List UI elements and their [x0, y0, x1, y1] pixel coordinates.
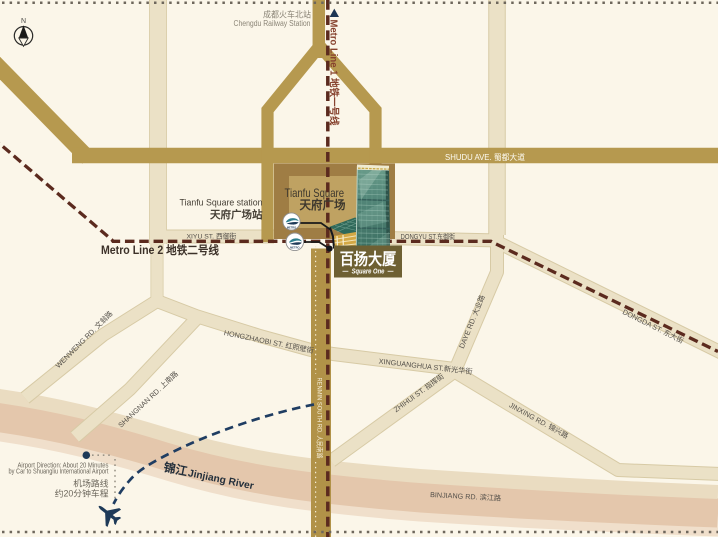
svg-text:Tianfu Square station: Tianfu Square station	[180, 198, 263, 209]
svg-text:Metro Line 1 地铁一号线: Metro Line 1 地铁一号线	[327, 20, 340, 126]
svg-text:by Car to Shuangliu Internatio: by Car to Shuangliu International Airpor…	[9, 467, 109, 476]
svg-text:成都火车北站: 成都火车北站	[263, 9, 311, 19]
svg-text:Chengdu Railway Station: Chengdu Railway Station	[234, 19, 311, 28]
svg-text:METRO: METRO	[290, 246, 299, 250]
svg-text:机场路线: 机场路线	[73, 478, 108, 489]
svg-text:天府广场站: 天府广场站	[210, 208, 263, 221]
svg-text:天府广场: 天府广场	[300, 197, 346, 212]
svg-text:SHUDU AVE. 蜀都大道: SHUDU AVE. 蜀都大道	[445, 152, 525, 162]
svg-text:DONGYU ST.东御街: DONGYU ST.东御街	[401, 232, 456, 241]
svg-text:N: N	[21, 18, 26, 25]
svg-text:RENMIN SOUTH RD. 人民南路: RENMIN SOUTH RD. 人民南路	[316, 378, 325, 459]
svg-text:— Square One —: — Square One —	[342, 267, 394, 276]
svg-text:Metro Line 2 地铁二号线: Metro Line 2 地铁二号线	[101, 243, 219, 257]
svg-text:XIYU ST. 西御街: XIYU ST. 西御街	[187, 231, 237, 240]
svg-text:约20分钟车程: 约20分钟车程	[55, 488, 109, 499]
svg-text:METRO: METRO	[287, 225, 296, 229]
